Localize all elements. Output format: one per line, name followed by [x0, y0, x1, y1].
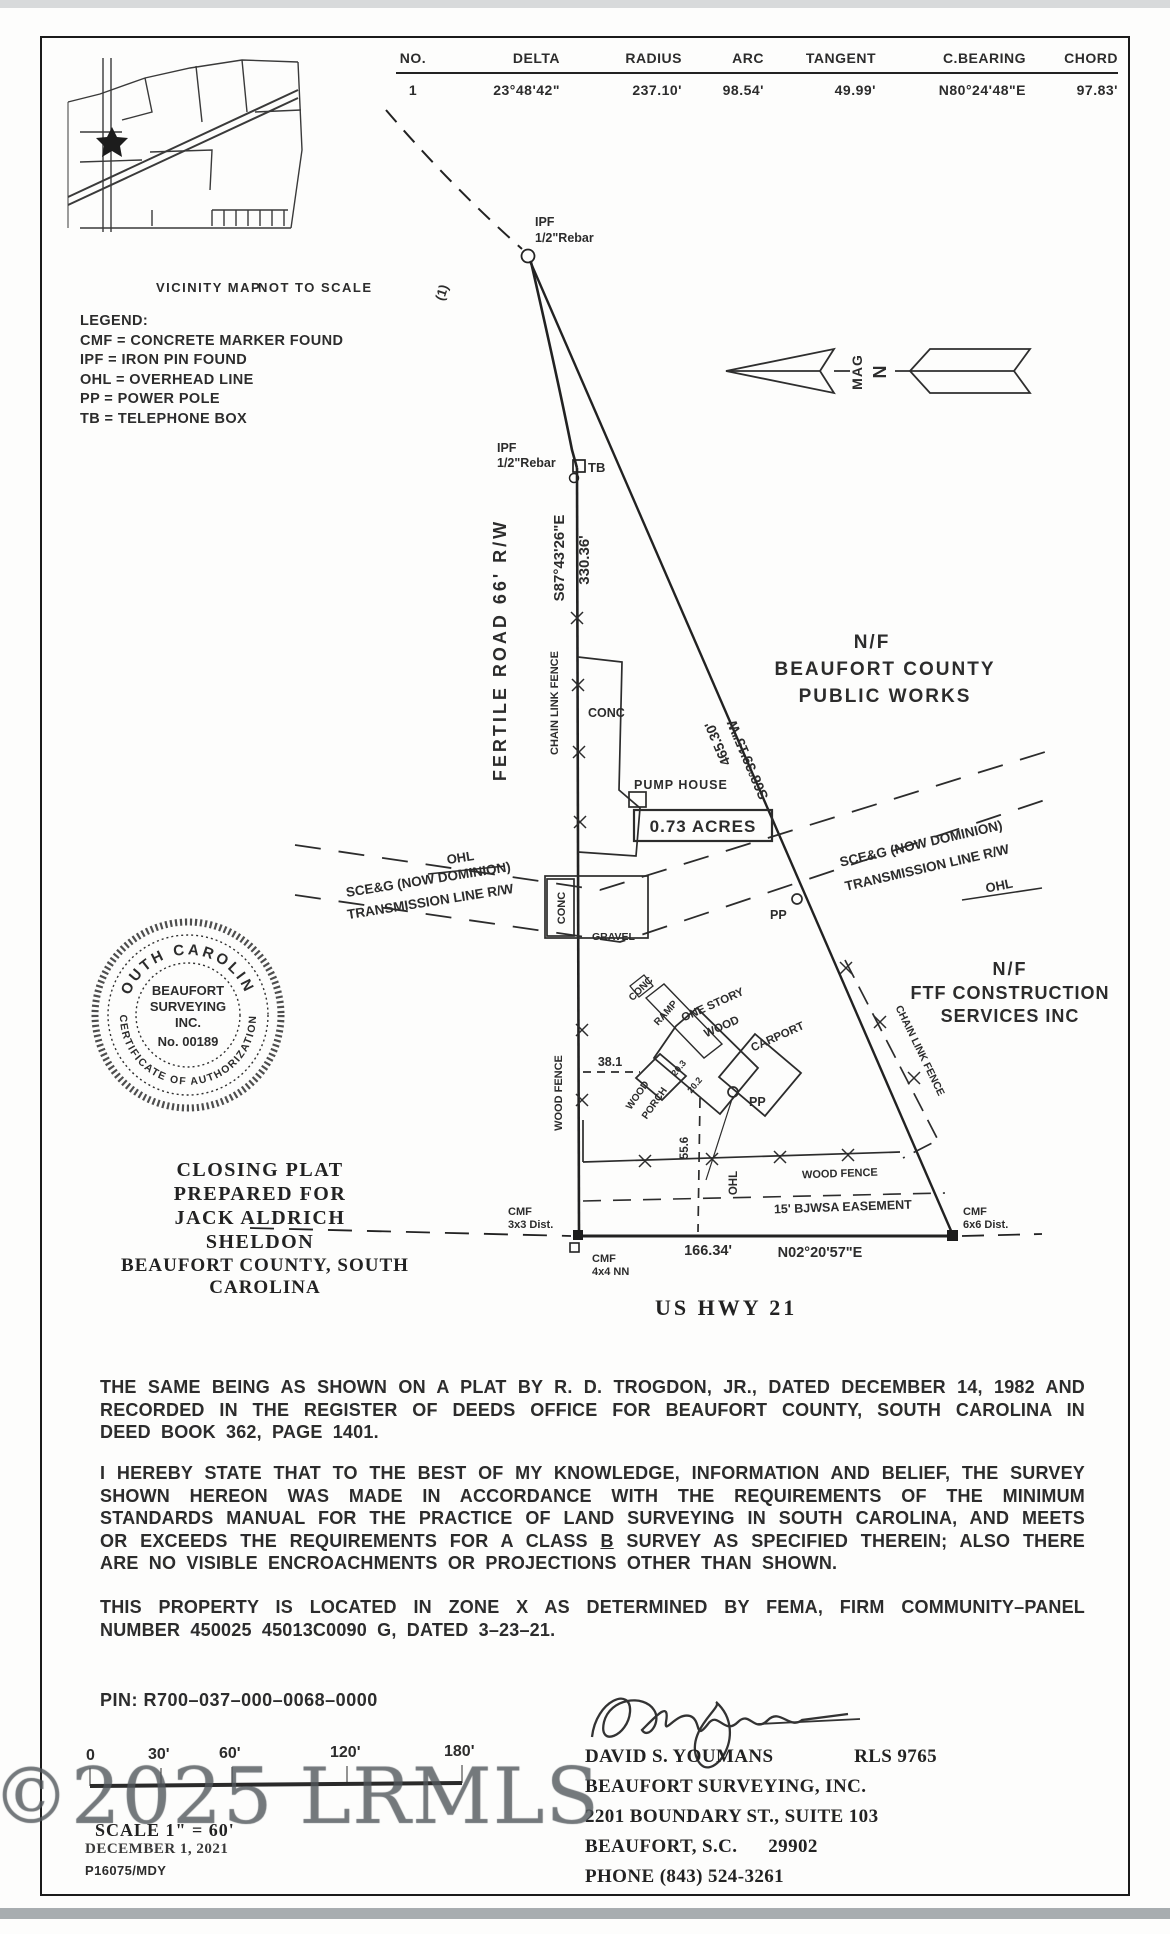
surveyor-phone: PHONE (843) 524-3261: [585, 1862, 945, 1892]
surveyor-address: 2201 BOUNDARY ST., SUITE 103: [585, 1802, 945, 1832]
nf-ftf-3: SERVICES INC: [941, 1006, 1080, 1026]
surveyor-name: DAVID S. YOUMANS: [585, 1742, 774, 1772]
fertile-road-label: FERTILE ROAD 66' R/W: [490, 519, 510, 781]
pp2-label: PP: [749, 1095, 766, 1109]
pp1-label: PP: [770, 908, 787, 922]
nf-ftf-2: FTF CONSTRUCTION: [911, 983, 1110, 1003]
conc-label-b: CONC: [556, 892, 568, 924]
cmf-6x6-label-2: 6x6 Dist.: [963, 1219, 1008, 1231]
survey-plat-page: NO. DELTA RADIUS ARC TANGENT C.BEARING C…: [0, 0, 1170, 1934]
vicinity-scale-note: NOT TO SCALE: [258, 280, 373, 295]
cmf-3x3-label-1: CMF: [508, 1206, 532, 1218]
class-b-underlined: B: [600, 1531, 613, 1551]
conc-label-a: CONC: [588, 706, 625, 720]
nf-ftf-1: N/F: [993, 959, 1028, 979]
ohl-bottom-label: OHL: [728, 1171, 740, 1195]
ramp-label: RAMP: [652, 998, 680, 1027]
seal-line-1: BEAUFORT: [152, 983, 224, 998]
gravel-label: GRAVEL: [592, 931, 636, 943]
title-line-2: PREPARED FOR: [90, 1182, 430, 1206]
job-number: P16075/MDY: [85, 1863, 166, 1878]
cmf-4x4-label-1: CMF: [592, 1253, 616, 1265]
dim-38-1: 38.1: [598, 1055, 622, 1069]
ipf-top-size-label: 1/2"Rebar: [535, 231, 594, 245]
ipf-top-label: IPF: [535, 215, 555, 229]
cmf-4x4-label-2: 4x4 NN: [592, 1266, 629, 1278]
county-line: BEAUFORT COUNTY, SOUTH CAROLINA: [85, 1255, 445, 1299]
acreage-label: 0.73 ACRES: [650, 817, 757, 836]
bottom-distance-label: 166.34': [684, 1243, 732, 1259]
certification-seal: SOUTH CAROLINA CERTIFICATE OF AUTHORIZAT…: [95, 922, 281, 1108]
seal-line-2: SURVEYING: [150, 999, 226, 1014]
mls-watermark: ©2025 LRMLS: [0, 1752, 600, 1842]
nf-public-works-3: PUBLIC WORKS: [799, 686, 972, 707]
title-line-4: SHELDON: [90, 1230, 430, 1254]
north-label: N: [870, 366, 890, 379]
surveyor-company: BEAUFORT SURVEYING, INC.: [585, 1772, 945, 1802]
survey-date: DECEMBER 1, 2021: [85, 1841, 228, 1858]
vicinity-map: [68, 58, 302, 232]
tb-label: TB: [588, 460, 605, 475]
title-line-3: JACK ALDRICH: [90, 1206, 430, 1230]
title-block: CLOSING PLAT PREPARED FOR JACK ALDRICH S…: [90, 1158, 430, 1254]
nf-public-works-2: BEAUFORT COUNTY: [774, 659, 995, 680]
surveyor-rls: RLS 9765: [854, 1742, 937, 1772]
road-bearing-label: S87°43'26"E: [551, 515, 568, 602]
road-distance-label: 330.36': [576, 535, 593, 584]
wood-fence-bottom-label: WOOD FENCE: [802, 1167, 878, 1182]
wood-fence-left-label: WOOD FENCE: [553, 1055, 565, 1131]
bottom-bearing-label: N02°20'57"E: [778, 1245, 863, 1261]
cmf-3x3-label-2: 3x3 Dist.: [508, 1219, 553, 1231]
us-hwy-21-label: US HWY 21: [655, 1295, 797, 1321]
ipf-mid-size-label: 1/2"Rebar: [497, 456, 556, 470]
conc-label-c: CONC: [627, 975, 656, 1004]
surveyor-block: DAVID S. YOUMANS RLS 9765 BEAUFORT SURVE…: [585, 1742, 945, 1892]
note-deed-reference: THE SAME BEING AS SHOWN ON A PLAT BY R. …: [100, 1376, 1085, 1444]
seal-line-3: INC.: [175, 1015, 201, 1030]
chain-link-fence-left-label: CHAIN LINK FENCE: [549, 651, 561, 755]
ohl-leader-lines: [428, 866, 1042, 900]
vicinity-caption: VICINITY MAP: [156, 280, 261, 295]
easement-label: 15' BJWSA EASEMENT: [774, 1198, 913, 1217]
pump-house-label: PUMP HOUSE: [634, 778, 728, 792]
dim-20-2: 20.2: [685, 1075, 704, 1095]
cmf-6x6-label-1: CMF: [963, 1206, 987, 1218]
ipf-mid-label: IPF: [497, 441, 517, 455]
pin-number: PIN: R700–037–000–0068–0000: [100, 1690, 378, 1711]
surveyor-name-row: DAVID S. YOUMANS RLS 9765: [585, 1742, 937, 1772]
seal-line-4: No. 00189: [158, 1034, 219, 1049]
plat-drawing: VICINITY MAP NOT TO SCALE MAG N: [0, 0, 1170, 1934]
title-line-1: CLOSING PLAT: [90, 1158, 430, 1182]
note-certification: I HEREBY STATE THAT TO THE BEST OF MY KN…: [100, 1462, 1085, 1575]
nf-public-works-1: N/F: [854, 632, 891, 653]
note-flood-zone: THIS PROPERTY IS LOCATED IN ZONE X AS DE…: [100, 1596, 1085, 1641]
ohl-left-label: OHL: [446, 848, 476, 867]
mag-label: MAG: [849, 354, 865, 390]
dim-55-6: 55.6: [679, 1137, 691, 1159]
surveyor-city: BEAUFORT, S.C. 29902: [585, 1832, 945, 1862]
curve-ref-label: (1): [432, 283, 451, 303]
